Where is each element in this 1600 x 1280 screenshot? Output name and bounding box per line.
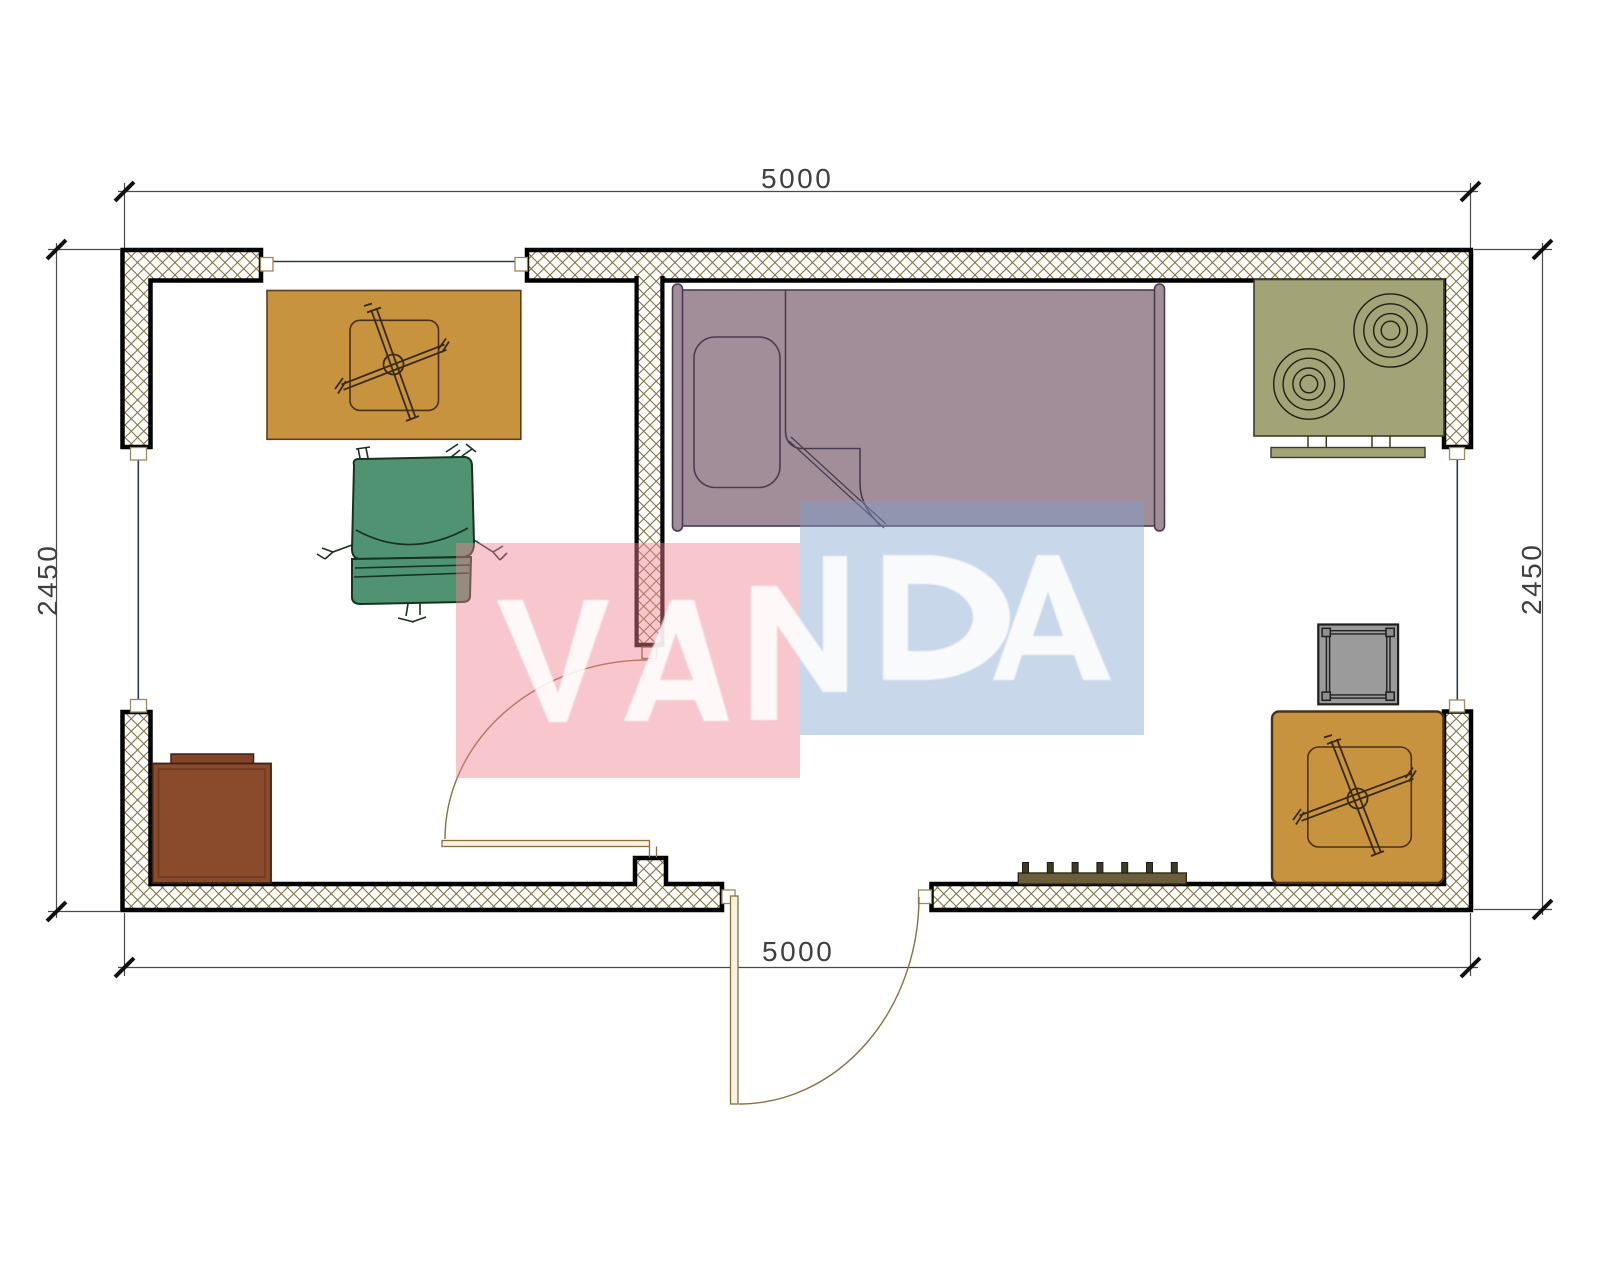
- svg-text:2450: 2450: [32, 544, 63, 616]
- svg-text:2450: 2450: [1516, 543, 1547, 615]
- svg-text:5000: 5000: [762, 936, 834, 967]
- svg-text:5000: 5000: [761, 163, 833, 194]
